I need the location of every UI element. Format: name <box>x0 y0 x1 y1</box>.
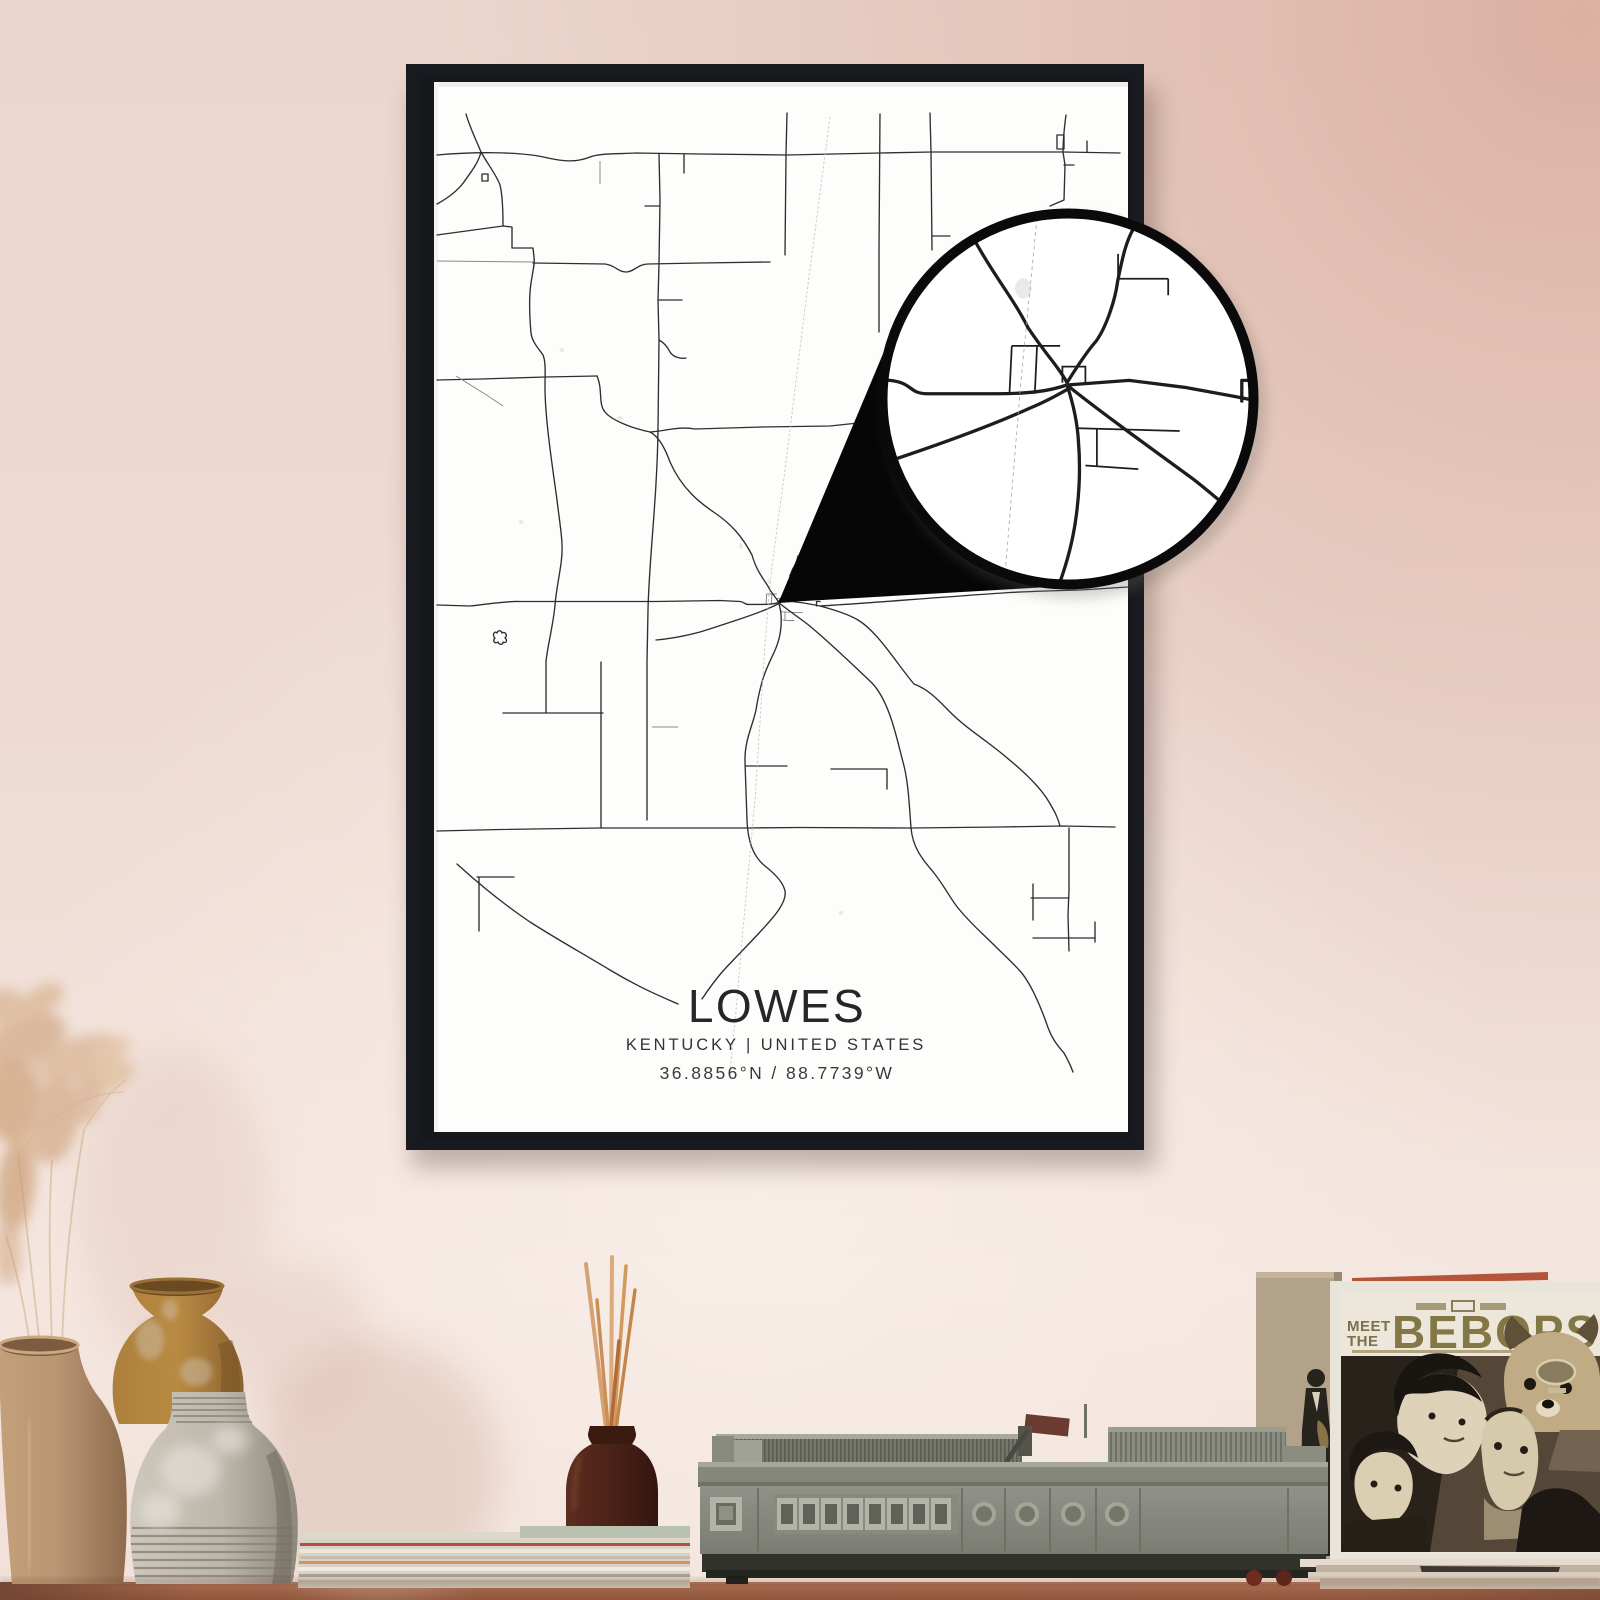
svg-text:36.8856°N / 88.7739°W: 36.8856°N / 88.7739°W <box>660 1063 895 1083</box>
svg-text:THE: THE <box>1347 1333 1379 1350</box>
svg-text:LOWES: LOWES <box>688 980 866 1032</box>
svg-text:KENTUCKY | UNITED STATES: KENTUCKY | UNITED STATES <box>626 1036 926 1054</box>
